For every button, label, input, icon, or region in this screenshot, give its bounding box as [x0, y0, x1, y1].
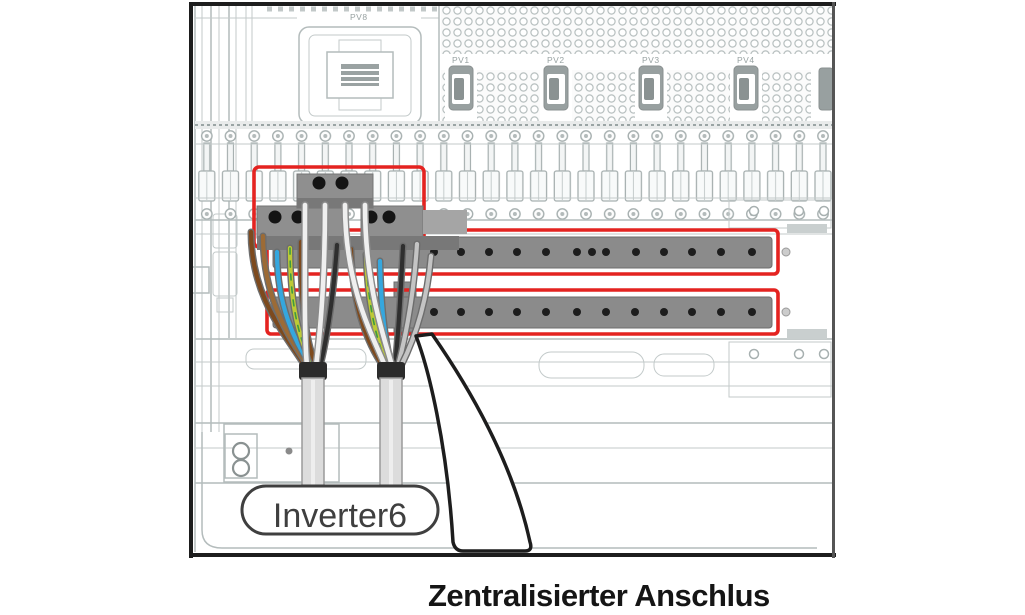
- part-tag: [787, 329, 827, 339]
- pv2-switch: [544, 66, 568, 110]
- cabinet-illustration: PV8: [189, 2, 836, 558]
- pv8-label: PV8: [350, 12, 368, 22]
- pv1-switch: [449, 66, 473, 110]
- pv4-label: PV4: [737, 55, 755, 65]
- pv4-switch: [734, 66, 758, 110]
- caption-text: Zentralisierter Anschlus: [428, 580, 988, 611]
- pv3-switch: [639, 66, 663, 110]
- terminal-extension: [423, 210, 467, 234]
- pv2-label: PV2: [547, 55, 565, 65]
- busbar-bottom: [267, 282, 790, 334]
- screenshot-root: PV8: [0, 0, 1025, 615]
- busbar-bar: [273, 297, 772, 328]
- pv3-label: PV3: [642, 55, 660, 65]
- part-tag: [787, 224, 827, 233]
- wiring-diagram: PV8: [189, 2, 836, 558]
- inverter-label-pill: Inverter6: [242, 486, 438, 535]
- pv1-label: PV1: [452, 55, 470, 65]
- perforated-panel: PV1 PV2 PV3 PV4: [439, 5, 834, 124]
- inverter-label: Inverter6: [273, 497, 407, 535]
- pv5-switch-partial: [819, 68, 833, 110]
